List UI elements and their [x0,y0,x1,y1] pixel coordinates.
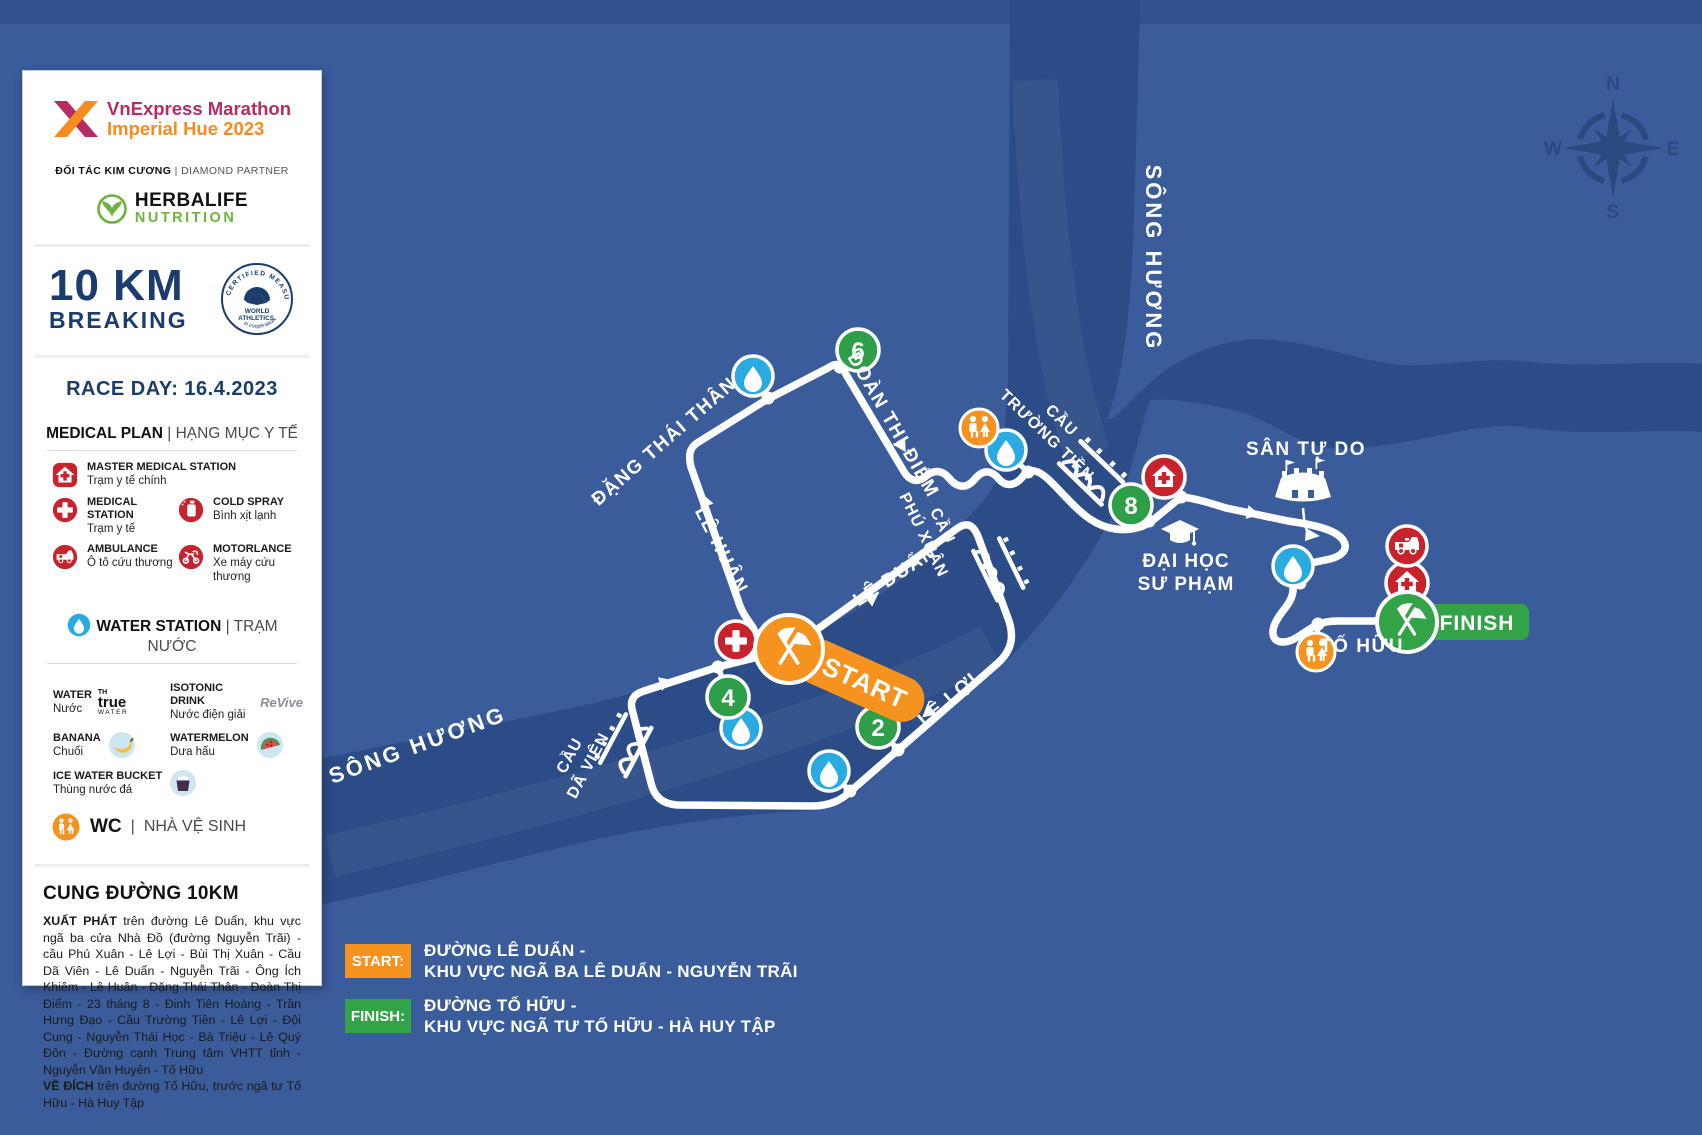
info-panel: VnExpress Marathon Imperial Hue 2023 ĐỐI… [22,70,322,986]
ambulance-icon [51,543,79,571]
distance-big: 10 KM [49,265,188,307]
divider [35,244,309,247]
course-start-paragraph: XUẤT PHÁT trên đường Lê Duẩn, khu vực ng… [43,913,301,1078]
legend-isotonic: ISOTONIC DRINKNước điện giải ReVive [170,682,303,722]
master-medical-icon [51,461,79,489]
medical-legend-grid: MEDICAL STATIONTrạm y tế COLD SPRAYBình … [51,489,303,584]
world-athletics-badge: CERTIFIED MEASURED COURSE in cooperation… [219,261,295,337]
medical-station-icon [51,496,79,524]
legend-water: WATERNước TH true WATER [53,682,158,722]
vnexpress-logo: VnExpress Marathon Imperial Hue 2023 [41,99,303,139]
compass-e: E [1667,139,1680,160]
compass-w: W [1544,139,1562,160]
course-title: CUNG ĐƯỜNG 10KM [43,883,303,905]
partner-vi: ĐỐI TÁC KIM CƯƠNG [55,165,171,177]
compass-s: S [1607,202,1620,223]
legend-finish-box: FINISH: [345,999,411,1033]
place-su-pham: SƯ PHẠM [1138,574,1235,595]
watermelon-icon [255,730,285,760]
th-true-water-logo: TH true WATER [98,689,128,716]
compass-n: N [1606,74,1620,95]
water-legend-grid: WATERNước TH true WATER ISOTONIC DRINKNư… [41,674,303,760]
divider [35,864,309,867]
partner-sep: | [175,165,178,177]
place-dai-hoc: ĐẠI HỌC [1142,551,1229,572]
river-label-north: SÔNG HƯƠNG [1141,165,1166,352]
badge-center1: WORLD [245,308,270,315]
partner-en: DIAMOND PARTNER [181,165,289,177]
legend-watermelon: WATERMELONDưa hấu [170,730,303,760]
place-san-tu-do: SÂN TỰ DO [1246,438,1366,460]
vnexpress-x-icon [53,100,99,138]
km-2: 2 [871,715,884,742]
divider [47,450,297,451]
badge-center2: ATHLETICS. [238,315,276,322]
logo-line2: Imperial Hue 2023 [107,119,291,139]
divider [47,663,297,664]
medical-plan-header: MEDICAL PLAN | HẠNG MỤC Y TẾ [41,425,303,443]
legend-ice-bucket: ICE WATER BUCKETThùng nước đá [53,768,303,798]
motorlance-icon [177,543,205,571]
divider [35,355,309,358]
legend-ambulance: AMBULANCEÔ tô cứu thương [51,543,177,584]
distance-sub: BREAKING [49,307,188,333]
diamond-partner-line: ĐỐI TÁC KIM CƯƠNG | DIAMOND PARTNER [41,165,303,177]
herbalife-line1: HERBALIFE [135,191,248,210]
finish-label: FINISH [1440,612,1515,635]
race-map-poster: 2 4 6 8 START FINISH ĐẶNG THÁI THÂN LÊ H… [0,0,1702,1135]
herbalife-line2: NUTRITION [135,210,248,226]
herbalife-leaf-icon [96,193,128,225]
wc-legend-row: WC | NHÀ VỆ SINH [51,812,303,842]
water-station-icon [66,612,92,638]
revive-logo: ReVive [260,695,303,710]
herbalife-logo: HERBALIFE NUTRITION [41,191,303,226]
course-finish-paragraph: VỀ ĐÍCH trên đường Tố Hữu, trước ngã tư … [43,1078,301,1111]
cold-spray-icon [177,496,205,524]
race-day: RACE DAY: 16.4.2023 [41,378,303,401]
ice-bucket-icon [168,768,198,798]
legend-start-row: START: ĐƯỜNG LÊ DUẨN - KHU VỰC NGÃ BA LÊ… [345,940,798,982]
top-shade-band [0,0,1702,24]
distance-block: 10 KM BREAKING CERTIFIED MEASURED COURSE… [41,261,303,337]
wc-icon [51,812,81,842]
water-station-header: WATER STATION | TRẠM NƯỚC [41,612,303,656]
legend-medical-station: MEDICAL STATIONTrạm y tế [51,496,177,536]
km-8: 8 [1124,493,1137,520]
legend-start-box: START: [345,944,411,978]
legend-start-line1: ĐƯỜNG LÊ DUẨN - [424,940,798,961]
legend-finish-line1: ĐƯỜNG TỐ HỮU - [424,995,776,1016]
km-4: 4 [721,685,735,712]
logo-line1: VnExpress Marathon [107,99,291,119]
legend-finish-row: FINISH: ĐƯỜNG TỐ HỮU - KHU VỰC NGÃ TƯ TỐ… [345,995,776,1037]
legend-start-line2: KHU VỰC NGÃ BA LÊ DUẨN - NGUYỄN TRÃI [424,961,798,982]
legend-finish-line2: KHU VỰC NGÃ TƯ TỐ HỮU - HÀ HUY TẬP [424,1016,776,1037]
legend-banana: BANANAChuối [53,730,158,760]
legend-master-medical: MASTER MEDICAL STATION Trạm y tế chính [51,461,303,489]
banana-icon [107,730,137,760]
legend-motorlance: MOTORLANCEXe máy cứu thương [177,543,303,584]
legend-cold-spray: COLD SPRAYBình xịt lạnh [177,496,303,536]
street-to-huu: TỐ HỮU [1320,635,1404,657]
